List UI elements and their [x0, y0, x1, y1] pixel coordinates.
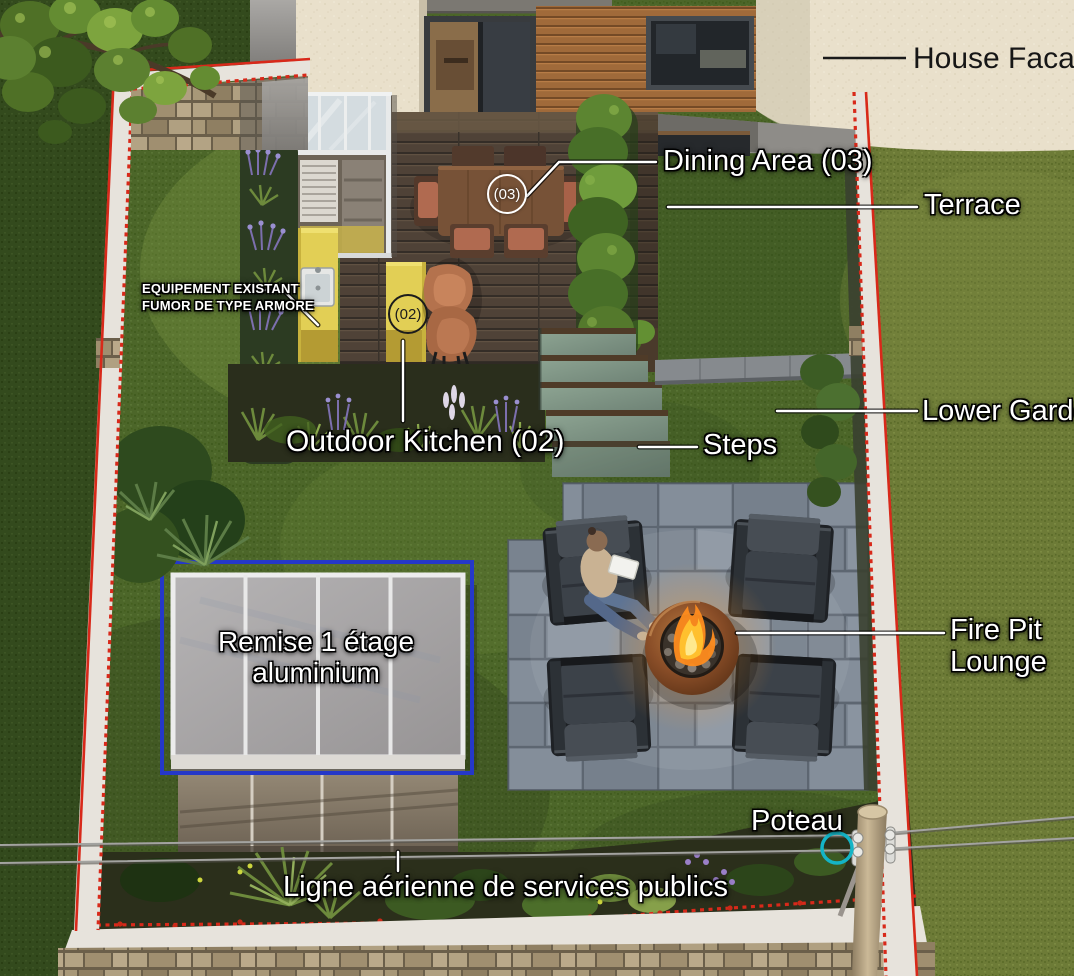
- label-equipment: EQUIPEMENT EXISTANT FUMOR DE TYPE ARMORE: [142, 281, 314, 315]
- garden-render: [0, 0, 1074, 976]
- label-poteau: Poteau: [751, 806, 843, 838]
- label-terrace: Terrace: [924, 190, 1021, 222]
- label-equipment-line1: EQUIPEMENT EXISTANT: [142, 281, 314, 298]
- badge-dining-03: (03): [487, 174, 527, 214]
- label-dining-area: Dining Area (03): [663, 146, 873, 178]
- label-outdoor-kitchen: Outdoor Kitchen (02): [286, 425, 564, 458]
- label-remise-line1: Remise 1 étage: [168, 627, 464, 658]
- label-fire-pit-line2: Lounge: [950, 647, 1047, 679]
- label-remise-line2: aluminium: [168, 658, 464, 689]
- badge-kitchen-02: (02): [388, 294, 428, 334]
- kitchen-window: [646, 16, 754, 90]
- label-fire-pit: Fire Pit Lounge: [950, 615, 1047, 679]
- label-fire-pit-line1: Fire Pit: [950, 615, 1047, 647]
- label-equipment-line2: FUMOR DE TYPE ARMORE: [142, 298, 314, 315]
- landscape-plan: House Facade Dining Area (03) Terrace Lo…: [0, 0, 1074, 976]
- wood-cladding: [536, 6, 756, 112]
- sliding-door: [424, 16, 536, 126]
- label-steps: Steps: [703, 430, 777, 462]
- fire-pit: [607, 563, 777, 733]
- label-utility-line: Ligne aérienne de services publics: [283, 872, 728, 904]
- label-lower-garden: Lower Garden: [922, 396, 1074, 428]
- label-remise: Remise 1 étage aluminium: [168, 627, 464, 689]
- label-house-facade: House Facade: [913, 42, 1074, 75]
- side-path: [250, 0, 298, 68]
- shed: [162, 562, 477, 857]
